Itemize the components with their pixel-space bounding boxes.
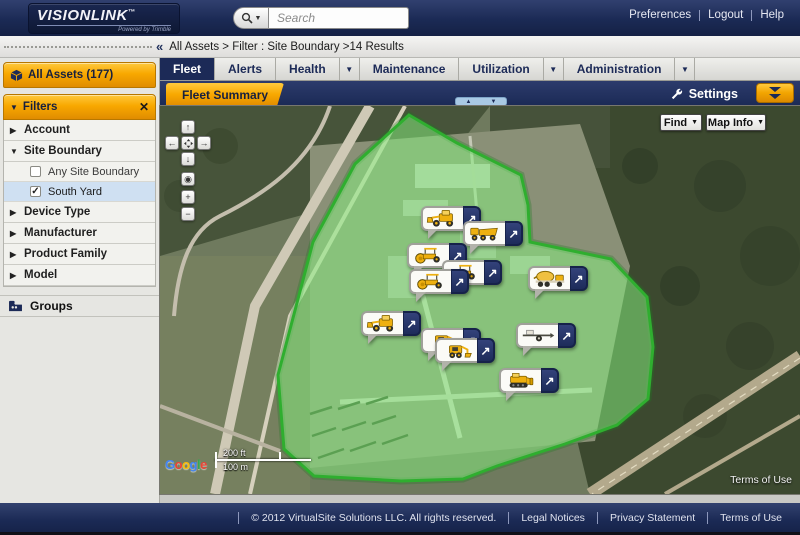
zoom-in-button[interactable]: + (181, 190, 195, 204)
asset-marker-trailer[interactable]: ↗ (516, 323, 576, 348)
module-tabs: FleetAlertsHealth▼MaintenanceUtilization… (160, 58, 800, 81)
filter-option-south-yard[interactable]: ✓South Yard (4, 182, 155, 202)
topbar-link-help[interactable]: Help (752, 9, 792, 21)
wrench-icon (670, 87, 683, 100)
wheel-loader-icon (421, 206, 463, 231)
asset-marker-dozer[interactable]: ↗ (499, 368, 559, 393)
chevron-down-icon: ▼ (255, 15, 262, 22)
pan-center-button[interactable] (181, 136, 195, 150)
chevron-right-icon: ▶ (10, 208, 18, 217)
chevron-down-icon: ▼ (691, 119, 698, 126)
find-button[interactable]: Find▼ (660, 114, 702, 131)
asset-details-button[interactable]: ↗ (505, 221, 523, 246)
main-panel: FleetAlertsHealth▼MaintenanceUtilization… (160, 58, 800, 503)
mixer-truck-icon (528, 266, 570, 291)
tab-administration-dropdown[interactable]: ▼ (675, 58, 695, 80)
asset-marker-roller[interactable]: ↗ (409, 269, 469, 294)
filter-section-model[interactable]: ▶Model (4, 265, 155, 286)
collapse-sidebar-button[interactable]: « (156, 40, 163, 53)
trademark-symbol: ™ (128, 9, 136, 16)
search-icon (241, 12, 253, 24)
footer-link-legal-notices[interactable]: Legal Notices (509, 512, 597, 524)
sidebar-item-groups[interactable]: Groups (0, 295, 159, 317)
asset-details-button[interactable]: ↗ (403, 311, 421, 336)
sidebar-resize-handle[interactable] (4, 46, 152, 48)
asset-marker-dump-truck[interactable]: ↗ (463, 221, 523, 246)
filters-label: Filters (23, 101, 58, 113)
marker-tail (368, 334, 378, 344)
topbar-link-preferences[interactable]: Preferences (621, 9, 699, 21)
roller-icon (409, 269, 451, 294)
asset-details-button[interactable]: ↗ (558, 323, 576, 348)
section-label: Device Type (24, 206, 90, 218)
marker-tail (428, 229, 438, 239)
pan-left-button[interactable]: ← (165, 136, 179, 150)
filter-section-product-family[interactable]: ▶Product Family (4, 244, 155, 265)
chevron-down-icon: ▼ (757, 119, 764, 126)
section-label: Manufacturer (24, 227, 97, 239)
filter-section-site-boundary[interactable]: ▼Site Boundary (4, 141, 155, 162)
section-label: Account (24, 124, 70, 136)
breadcrumb: All Assets > Filter : Site Boundary >14 … (169, 41, 404, 53)
top-bar: VISIONLINK™ Powered by Trimble ▼ Prefere… (0, 0, 800, 36)
pan-right-button[interactable]: → (197, 136, 211, 150)
google-logo[interactable]: Google (165, 457, 207, 472)
option-label: Any Site Boundary (48, 166, 139, 178)
scale-imperial: 200 ft (223, 448, 311, 458)
checkbox-unchecked[interactable] (30, 166, 41, 177)
close-icon[interactable]: ✕ (139, 100, 149, 114)
section-label: Product Family (24, 248, 107, 260)
search-input[interactable] (269, 7, 409, 29)
google-logo-letter: G (165, 457, 175, 472)
tab-health-dropdown[interactable]: ▼ (340, 58, 360, 80)
footer-links: Legal NoticesPrivacy StatementTerms of U… (508, 512, 794, 524)
filters-header[interactable]: ▼ Filters ✕ (3, 94, 156, 120)
google-logo-letter: g (190, 457, 197, 472)
collapse-down-icon[interactable]: ▼ (491, 99, 497, 105)
zoom-out-button[interactable]: − (181, 207, 195, 221)
recenter-button[interactable]: ◉ (181, 172, 195, 186)
marker-tail (535, 289, 545, 299)
satellite-imagery (160, 106, 800, 494)
map-scale-bar: 200 ft 100 m (215, 448, 311, 472)
scale-metric: 100 m (223, 462, 311, 472)
google-logo-letter: e (200, 457, 207, 472)
google-logo-letter: o (182, 457, 189, 472)
asset-details-button[interactable]: ↗ (451, 269, 469, 294)
visionlink-logo[interactable]: VISIONLINK™ Powered by Trimble (28, 3, 180, 34)
collapse-up-icon[interactable]: ▲ (466, 99, 472, 105)
section-label: Site Boundary (24, 145, 102, 157)
marker-tail (506, 391, 516, 401)
footer-link-privacy-statement[interactable]: Privacy Statement (598, 512, 707, 524)
visionlink-app-window: VISIONLINK™ Powered by Trimble ▼ Prefere… (0, 0, 800, 535)
footer-bar: © 2012 VirtualSite Solutions LLC. All ri… (0, 503, 800, 532)
asset-details-button[interactable]: ↗ (477, 338, 495, 363)
filter-sections: ▶Account▼Site BoundaryAny Site Boundary✓… (3, 120, 156, 287)
topbar-links: PreferencesLogoutHelp (621, 9, 792, 21)
search-scope-button[interactable]: ▼ (233, 7, 269, 29)
settings-button[interactable]: Settings (670, 81, 738, 106)
map-info-button[interactable]: Map Info▼ (706, 114, 766, 131)
pan-up-button[interactable]: ↑ (181, 120, 195, 134)
dozer-icon (499, 368, 541, 393)
all-assets-label: All Assets (177) (28, 69, 113, 81)
sub-toolbar: Fleet Summary ▲ ▼ Settings (160, 81, 800, 106)
tab-fleet[interactable]: Fleet (160, 58, 215, 80)
map-view[interactable]: ↑ ← → ↓ ◉ + − Find▼ Map Info▼ ↗↗↗↗↗↗↗↗↗↗… (160, 106, 800, 494)
checkbox-checked[interactable]: ✓ (30, 186, 41, 197)
settings-label: Settings (689, 87, 738, 101)
tab-fleet-summary[interactable]: Fleet Summary (166, 83, 284, 106)
copyright-text: © 2012 VirtualSite Solutions LLC. All ri… (239, 512, 508, 524)
all-assets-button[interactable]: All Assets (177) (3, 62, 156, 88)
option-label: South Yard (48, 186, 102, 198)
filter-section-account[interactable]: ▶Account (4, 120, 155, 141)
tab-utilization-dropdown[interactable]: ▼ (544, 58, 564, 80)
tab-alerts[interactable]: Alerts (215, 58, 276, 80)
wheel-loader-icon (361, 311, 403, 336)
chevron-down-icon (769, 87, 781, 92)
footer-link-terms-of-use[interactable]: Terms of Use (708, 512, 794, 524)
marker-tail (523, 346, 533, 356)
filter-sidebar: All Assets (177) ▼ Filters ✕ ▶Account▼Si… (0, 58, 160, 503)
tab-maintenance[interactable]: Maintenance (360, 58, 460, 80)
tab-administration[interactable]: Administration (564, 58, 676, 80)
section-label: Model (24, 269, 57, 281)
pan-down-button[interactable]: ↓ (181, 152, 195, 166)
asset-marker-mixer-truck[interactable]: ↗ (528, 266, 588, 291)
google-logo-letter: o (175, 457, 182, 472)
groups-folder-icon (8, 300, 23, 312)
expand-panel-button[interactable] (756, 83, 794, 103)
marker-tail (442, 361, 452, 371)
breadcrumb-bar: « All Assets > Filter : Site Boundary >1… (0, 36, 800, 58)
search-control: ▼ (233, 7, 409, 29)
skid-steer-icon (435, 338, 477, 363)
marker-tail (470, 244, 480, 254)
asset-details-button[interactable]: ↗ (484, 260, 502, 285)
asset-marker-skid-steer[interactable]: ↗ (435, 338, 495, 363)
filter-option-any-site-boundary[interactable]: Any Site Boundary (4, 162, 155, 182)
topbar-link-logout[interactable]: Logout (700, 9, 751, 21)
trailer-icon (516, 323, 558, 348)
asset-marker-wheel-loader[interactable]: ↗ (361, 311, 421, 336)
chevron-right-icon: ▶ (10, 271, 18, 280)
marker-tail (416, 292, 426, 302)
asset-details-button[interactable]: ↗ (570, 266, 588, 291)
tab-utilization[interactable]: Utilization (459, 58, 543, 80)
dump-truck-icon (463, 221, 505, 246)
groups-label: Groups (30, 299, 73, 313)
move-icon (184, 139, 193, 148)
filter-section-manufacturer[interactable]: ▶Manufacturer (4, 223, 155, 244)
chevron-right-icon: ▶ (10, 229, 18, 238)
chevron-right-icon: ▶ (10, 126, 18, 135)
asset-details-button[interactable]: ↗ (541, 368, 559, 393)
filter-section-device-type[interactable]: ▶Device Type (4, 202, 155, 223)
chevron-right-icon: ▶ (10, 250, 18, 259)
chevron-down-icon: ▼ (10, 147, 18, 156)
chevron-down-icon (769, 94, 781, 99)
cube-icon (10, 69, 23, 82)
tab-health[interactable]: Health (276, 58, 340, 80)
chevron-down-icon: ▼ (10, 103, 18, 112)
map-terms-link[interactable]: Terms of Use (730, 474, 792, 486)
brand-tagline: Powered by Trimble (37, 25, 171, 33)
map-collapse-handle[interactable]: ▲ ▼ (455, 97, 507, 106)
brand-name: VISIONLINK™ (37, 7, 171, 24)
